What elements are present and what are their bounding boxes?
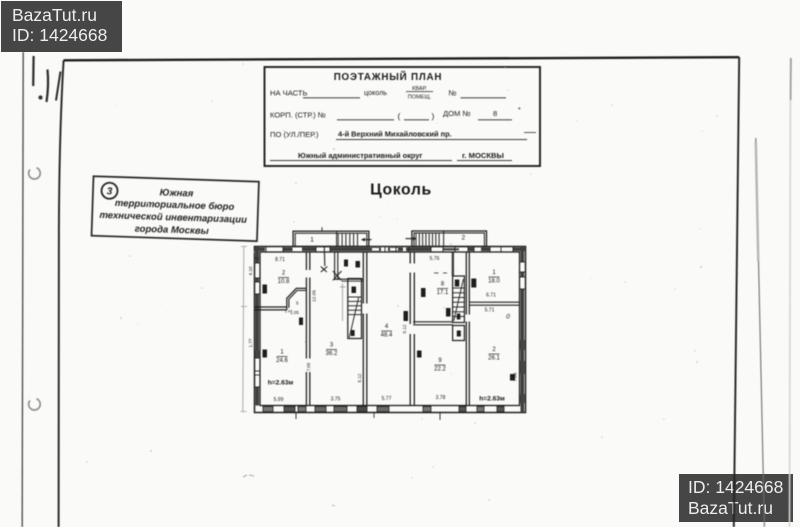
svg-text:5.77: 5.77 bbox=[382, 396, 392, 402]
svg-text:(: ( bbox=[398, 111, 401, 121]
svg-text:города Москвы: города Москвы bbox=[135, 224, 209, 237]
svg-text:36.2: 36.2 bbox=[326, 351, 338, 357]
svg-text:3: 3 bbox=[330, 343, 334, 349]
svg-text:ДОМ №: ДОМ № bbox=[443, 109, 471, 118]
svg-text:8.71: 8.71 bbox=[275, 257, 285, 263]
svg-text:цоколь: цоколь bbox=[364, 88, 387, 97]
svg-text:8: 8 bbox=[493, 109, 497, 118]
svg-text:4: 4 bbox=[385, 324, 389, 330]
svg-text:4.10: 4.10 bbox=[248, 266, 253, 275]
svg-text:№: № bbox=[449, 88, 457, 97]
svg-text:5.12: 5.12 bbox=[402, 324, 407, 333]
svg-text:5.12: 5.12 bbox=[357, 373, 362, 382]
svg-text:48.4: 48.4 bbox=[381, 333, 393, 339]
svg-text:1.47: 1.47 bbox=[285, 309, 294, 314]
svg-text:1: 1 bbox=[280, 350, 284, 356]
svg-text:ПОМЕЩ.: ПОМЕЩ. bbox=[408, 94, 432, 100]
svg-text:НА ЧАСТЬ: НА ЧАСТЬ bbox=[270, 89, 307, 98]
svg-text:2: 2 bbox=[461, 234, 465, 241]
svg-text:2: 2 bbox=[492, 347, 496, 353]
svg-text:4-й Верхний Михайловский пр.: 4-й Верхний Михайловский пр. bbox=[338, 129, 452, 138]
svg-text:Цоколь: Цоколь bbox=[370, 182, 432, 199]
svg-text:1: 1 bbox=[492, 270, 496, 276]
svg-text:3.78: 3.78 bbox=[436, 395, 446, 401]
svg-text:): ) bbox=[432, 111, 435, 121]
svg-text:ПО (УЛ./ПЕР.): ПО (УЛ./ПЕР.) bbox=[270, 130, 319, 139]
svg-text:Южная: Южная bbox=[159, 187, 193, 199]
svg-text:0.2: 0.2 bbox=[255, 256, 261, 261]
svg-text:7.05: 7.05 bbox=[306, 362, 311, 371]
svg-text:h=2.63м: h=2.63м bbox=[479, 396, 505, 403]
svg-text:5: 5 bbox=[296, 301, 299, 306]
svg-text:Южный административный округ: Южный административный округ bbox=[298, 151, 422, 160]
svg-text:г. МОСКВЫ: г. МОСКВЫ bbox=[462, 151, 504, 160]
svg-text:9: 9 bbox=[438, 358, 442, 364]
svg-text:КВАР.: КВАР. bbox=[412, 86, 427, 92]
svg-text:3.75: 3.75 bbox=[331, 397, 341, 403]
svg-text:5.99: 5.99 bbox=[274, 397, 284, 403]
svg-text:17.1: 17.1 bbox=[437, 290, 449, 296]
svg-text:5.71: 5.71 bbox=[485, 308, 495, 314]
svg-text:КОРП. (СТР.) №: КОРП. (СТР.) № bbox=[270, 111, 326, 120]
svg-text:22.2: 22.2 bbox=[434, 367, 446, 373]
svg-text:5.76: 5.76 bbox=[430, 256, 440, 262]
svg-text:10.8: 10.8 bbox=[278, 279, 290, 285]
svg-text:ПОЭТАЖНЫЙ ПЛАН: ПОЭТАЖНЫЙ ПЛАН bbox=[334, 71, 443, 83]
svg-text:h=2.63м: h=2.63м bbox=[268, 379, 294, 386]
svg-text:0: 0 bbox=[506, 314, 510, 321]
svg-text:*: * bbox=[518, 107, 521, 114]
svg-text:12.05: 12.05 bbox=[312, 290, 318, 302]
svg-text:1.77: 1.77 bbox=[248, 338, 253, 347]
svg-text:7.06: 7.06 bbox=[512, 372, 517, 381]
svg-text:6.71: 6.71 bbox=[486, 293, 496, 299]
svg-text:3: 3 bbox=[107, 186, 113, 197]
svg-text:8: 8 bbox=[441, 282, 445, 288]
svg-text:2: 2 bbox=[282, 271, 286, 277]
svg-text:24.6: 24.6 bbox=[276, 358, 288, 364]
svg-text:18.0: 18.0 bbox=[488, 279, 500, 285]
svg-text:1: 1 bbox=[310, 236, 314, 243]
svg-text:26.1: 26.1 bbox=[488, 356, 500, 362]
